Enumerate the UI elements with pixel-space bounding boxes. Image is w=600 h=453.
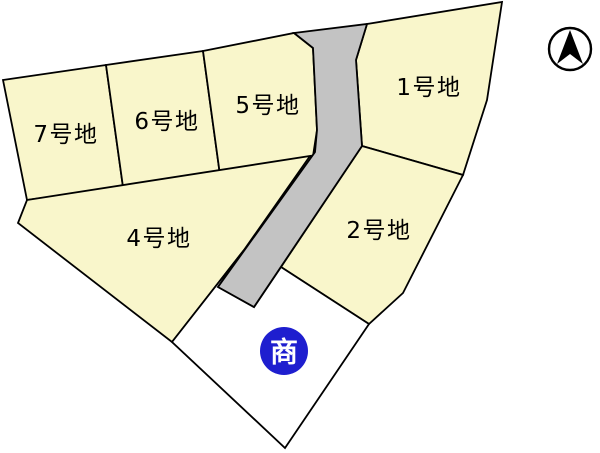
lot-map-canvas: 7号地6号地5号地1号地2号地4号地 商 bbox=[0, 0, 600, 453]
lot-2-label: 2号地 bbox=[346, 218, 411, 244]
lot-1-label: 1号地 bbox=[396, 75, 461, 101]
compass-arrow bbox=[557, 30, 583, 64]
compass-north-icon bbox=[549, 28, 591, 70]
site-plan-svg: 7号地6号地5号地1号地2号地4号地 商 bbox=[0, 0, 600, 453]
commercial-badge-label: 商 bbox=[270, 336, 298, 369]
commercial-badge: 商 bbox=[260, 327, 308, 375]
lot-6-label: 6号地 bbox=[134, 109, 199, 135]
lot-4-label: 4号地 bbox=[126, 226, 191, 252]
lot-7-label: 7号地 bbox=[33, 122, 98, 148]
lot-5-label: 5号地 bbox=[235, 93, 300, 119]
